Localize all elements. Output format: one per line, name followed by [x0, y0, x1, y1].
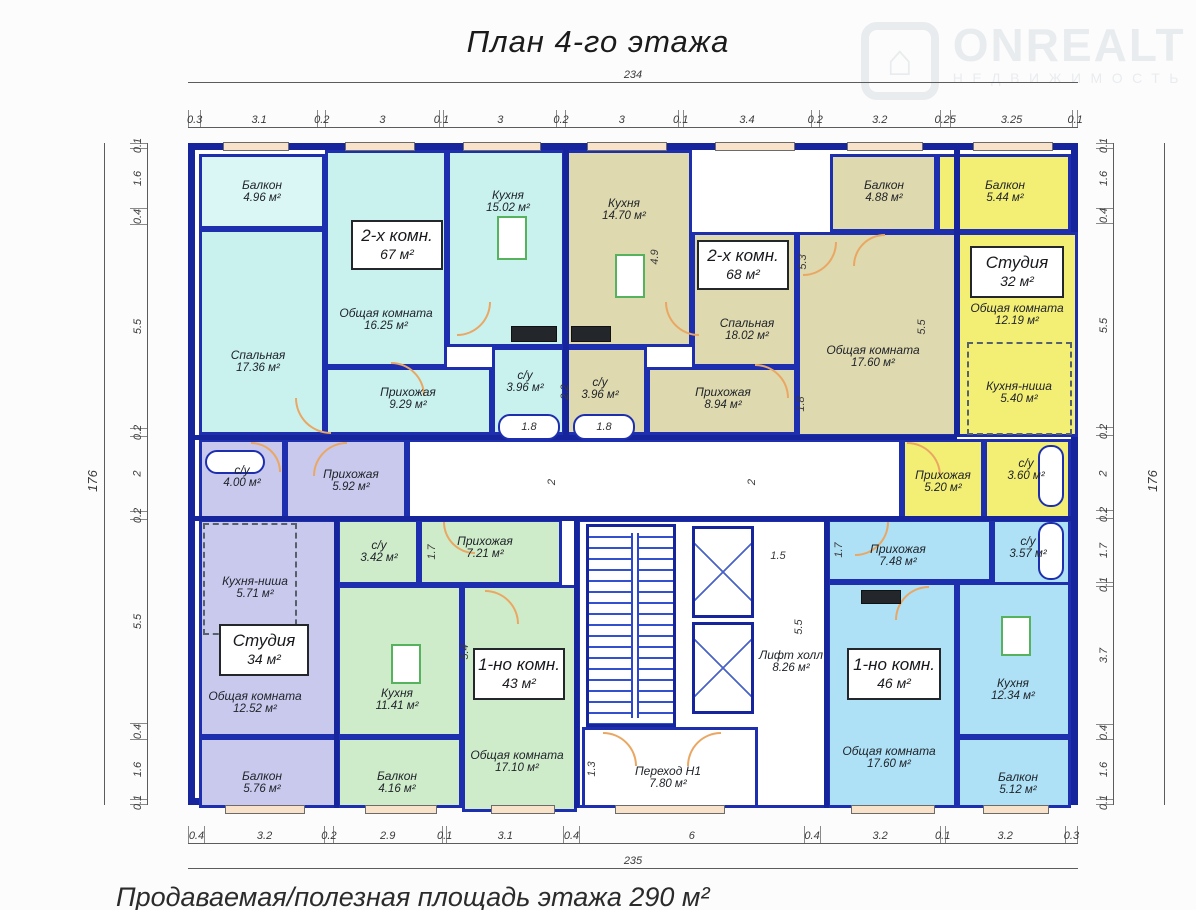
dimension-segment: 3.1 [201, 110, 318, 127]
dimension-col-left: 0.11.60.45.50.220.25.50.41.60.1 [130, 143, 148, 805]
interior-dimension: 1.5 [770, 550, 785, 562]
dimension-segment: 2 [1096, 436, 1113, 511]
room-label: Кухня-ниша5.71 м² [222, 574, 288, 602]
window [715, 142, 795, 151]
dimension-segment: 0.1 [130, 800, 147, 805]
window [615, 805, 725, 814]
house-logo-icon: ⌂ [861, 22, 939, 100]
room-label: Балкон5.44 м² [985, 178, 1025, 206]
wall [334, 519, 339, 808]
dimension-segment: 0.3 [1066, 826, 1078, 843]
window [851, 805, 935, 814]
room-label: Общая комната17.60 м² [826, 343, 919, 371]
dimension-segment: 0.2 [318, 110, 326, 127]
room-label: Кухня14.70 м² [602, 196, 646, 224]
apartment-type-badge: Студия34 м² [219, 624, 309, 676]
dimension-segment: 0.2 [1096, 428, 1113, 436]
wall [574, 519, 579, 808]
dimension-segment: 1.6 [130, 149, 147, 209]
dimension-row-top: 0.33.10.230.130.230.13.40.23.20.253.250.… [188, 110, 1078, 128]
onrealt-watermark: ⌂ ONREALT НЕДВИЖИМОСТЬ [861, 22, 1188, 100]
dimension-segment: 1.6 [1096, 149, 1113, 209]
interior-dimension: 5.5 [916, 319, 928, 334]
room-label: Спальная17.36 м² [231, 348, 286, 376]
corridor [407, 439, 902, 519]
dimension-segment: 3.2 [946, 826, 1066, 843]
dimension-segment: 0.4 [1096, 209, 1113, 225]
room-kitchen [957, 582, 1071, 737]
dimension-segment: 0.2 [812, 110, 820, 127]
room-label: Общая комната17.60 м² [842, 744, 935, 772]
dimension-segment: 0.1 [1073, 110, 1078, 127]
window [365, 805, 437, 814]
window [345, 142, 415, 151]
dimension-segment: 0.2 [557, 110, 565, 127]
window [225, 805, 305, 814]
room-label: Балкон5.76 м² [242, 769, 282, 797]
interior-dimension: 2.2 [559, 384, 571, 399]
room-label: Кухня11.41 м² [376, 686, 419, 714]
room-label: Прихожая8.94 м² [695, 385, 751, 413]
dimension-segment: 0.4 [1096, 725, 1113, 741]
room-label: Прихожая5.92 м² [323, 467, 379, 495]
wall [954, 150, 960, 437]
dimension-total-right: 176 [1148, 143, 1165, 805]
dimension-segment: 0.2 [1096, 511, 1113, 519]
dimension-row-bottom: 0.43.20.22.90.13.10.460.43.20.13.20.3 [188, 826, 1078, 844]
bathtub-length: 1.8 [596, 421, 611, 433]
wall [824, 519, 829, 808]
dimension-segment: 0.1 [1096, 800, 1113, 805]
dimension-segment: 3.1 [447, 826, 564, 843]
room-label: Спальная18.02 м² [720, 316, 775, 344]
dimension-total-top: 234 [188, 66, 1078, 83]
room-label: Общая комната12.52 м² [208, 689, 301, 717]
dimension-segment: 3 [444, 110, 557, 127]
staircase [586, 524, 676, 727]
window [491, 805, 555, 814]
dimension-segment: 2.9 [334, 826, 443, 843]
interior-dimension: 1.3 [586, 761, 598, 776]
interior-dimension: 1.7 [833, 542, 845, 557]
room-label: Балкон4.96 м² [242, 178, 282, 206]
dimension-segment: 5.5 [130, 225, 147, 429]
dimension-segment: 0.25 [941, 110, 951, 127]
dimension-segment: 1.6 [130, 740, 147, 800]
dimension-total-left: 176 [88, 143, 105, 805]
bathtub-length: 1.8 [521, 421, 536, 433]
room-label: Балкон4.88 м² [864, 178, 904, 206]
dimension-col-right: 0.11.60.45.50.220.21.70.13.70.41.60.1 [1096, 143, 1114, 805]
dimension-segment: 0.4 [130, 724, 147, 740]
room-label: Кухня12.34 м² [991, 676, 1035, 704]
window [223, 142, 289, 151]
room-label: Кухня-ниша5.40 м² [986, 379, 1052, 407]
room-label: с/у4.00 м² [223, 463, 260, 491]
interior-dimension: 1.7 [426, 544, 438, 559]
interior-dimension: 2 [546, 479, 558, 485]
window [983, 805, 1049, 814]
bathtub-icon: 1.8 [498, 414, 560, 440]
interior-dimension: 5.3 [797, 254, 809, 269]
room-label: Общая комната12.19 м² [970, 301, 1063, 329]
interior-dimension: 5.4 [459, 644, 471, 659]
wall [195, 516, 1071, 521]
stove-icon [571, 326, 611, 342]
room-label: с/у3.96 м² [581, 375, 618, 403]
room-label: Переход Н17.80 м² [635, 764, 701, 792]
dimension-segment: 3.25 [951, 110, 1073, 127]
dimension-segment: 0.4 [188, 826, 205, 843]
apartment-type-badge: 1-но комн.46 м² [847, 648, 941, 700]
room-label: с/у3.96 м² [506, 368, 543, 396]
building-outline: 1.8 1.8 Балкон4.96 м² Спальная17.36 м² О… [188, 143, 1078, 805]
bathtub-icon: 1.8 [573, 414, 635, 440]
floor-area-summary: Продаваемая/полезная площадь этажа 290 м… [116, 882, 709, 910]
dimension-segment: 3 [326, 110, 439, 127]
kitchen-table-icon [1001, 616, 1031, 656]
stair-divider [631, 533, 639, 718]
stove-icon [511, 326, 557, 342]
dimension-segment: 5.5 [130, 520, 147, 724]
stove-icon [861, 590, 901, 604]
room-label: Лифт холл8.26 м² [759, 648, 823, 676]
room-label: с/у3.42 м² [360, 538, 397, 566]
window [463, 142, 541, 151]
apartment-type-badge: 2-х комн.67 м² [351, 220, 443, 270]
elevator-shaft [692, 622, 754, 714]
dimension-segment: 0.3 [188, 110, 201, 127]
kitchen-table-icon [391, 644, 421, 684]
dimension-segment: 0.2 [130, 512, 147, 520]
room-label: Общая комната17.10 м² [470, 748, 563, 776]
dimension-segment: 3.2 [205, 826, 325, 843]
dimension-segment: 1.6 [1096, 740, 1113, 800]
interior-dimension: 5.5 [793, 619, 805, 634]
logo-brand-text: ONREALT [953, 22, 1188, 68]
dimension-segment: 0.4 [805, 826, 821, 843]
interior-dimension: 2 [746, 479, 758, 485]
dimension-segment: 2 [130, 437, 147, 512]
dimension-segment: 3.7 [1096, 587, 1113, 724]
interior-dimension: 4.9 [649, 249, 661, 264]
dimension-total-bottom: 235 [188, 852, 1078, 869]
room-label: Балкон5.12 м² [998, 770, 1038, 798]
room-label: Прихожая7.21 м² [457, 534, 513, 562]
room-label: Прихожая5.20 м² [915, 468, 971, 496]
window [847, 142, 923, 151]
window [973, 142, 1053, 151]
elevator-shaft [692, 526, 754, 618]
dimension-segment: 0.4 [130, 209, 147, 225]
dimension-segment: 0.4 [564, 826, 580, 843]
apartment-type-badge: 1-но комн.43 м² [473, 648, 565, 700]
dimension-segment: 1.7 [1096, 519, 1113, 583]
dimension-segment: 6 [580, 826, 805, 843]
apartment-type-badge: 2-х комн.68 м² [697, 240, 789, 290]
dimension-segment: 0.2 [325, 826, 333, 843]
dimension-segment: 3.2 [820, 110, 941, 127]
room-label: Прихожая9.29 м² [380, 385, 436, 413]
room-label: с/у3.57 м² [1009, 534, 1046, 562]
interior-dimension: 1.8 [795, 396, 807, 411]
dimension-segment: 3 [566, 110, 679, 127]
room-label: Общая комната16.25 м² [339, 306, 432, 334]
dimension-segment: 0.2 [130, 429, 147, 437]
floor-plan-page: План 4-го этажа ⌂ ONREALT НЕДВИЖИМОСТЬ 2… [0, 0, 1196, 910]
kitchen-table-icon [497, 216, 527, 260]
dimension-segment: 3.4 [684, 110, 812, 127]
room-label: Балкон4.16 м² [377, 769, 417, 797]
window [587, 142, 667, 151]
dimension-segment: 3.2 [821, 826, 941, 843]
dimension-segment: 5.5 [1096, 224, 1113, 428]
apartment-type-badge: Студия32 м² [970, 246, 1064, 298]
room-label: Прихожая7.48 м² [870, 542, 926, 570]
kitchen-table-icon [615, 254, 645, 298]
room-label: с/у3.60 м² [1007, 456, 1044, 484]
room-label: Кухня15.02 м² [486, 188, 530, 216]
